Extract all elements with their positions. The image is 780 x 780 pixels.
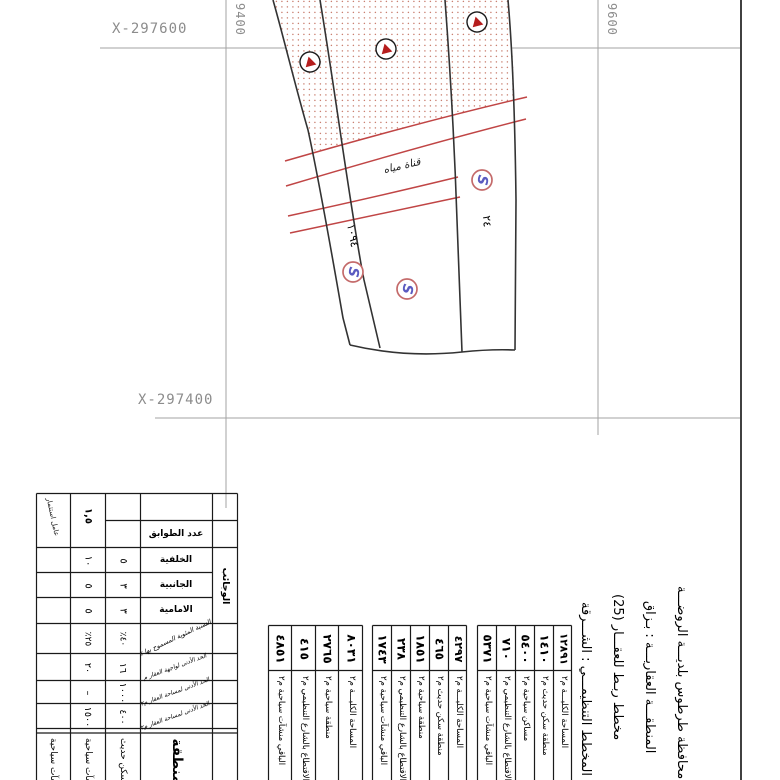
road-line-3	[288, 177, 458, 216]
s-symbol-icon: S	[472, 170, 492, 190]
road-line-4	[290, 197, 460, 233]
grid-label-x297400: X-297400	[138, 392, 213, 408]
floors-header: عدد الطوابق	[149, 529, 204, 539]
row-front-label: الامامية	[159, 605, 192, 615]
regulations-table-lines	[37, 494, 238, 780]
grid-label-x297600: X-297600	[112, 21, 187, 37]
s-symbols: S S S	[343, 170, 492, 299]
row-side-label: الجانبية	[160, 580, 193, 590]
s-symbol-icon: S	[343, 262, 363, 282]
parcel-boundary-bottom	[350, 345, 515, 354]
row-rear-label: الخلفية	[160, 555, 192, 565]
survey-sheet: S S S X-297600 X-297400 9400 9600 قناة م…	[0, 0, 780, 780]
s-symbol-icon: S	[397, 279, 417, 299]
